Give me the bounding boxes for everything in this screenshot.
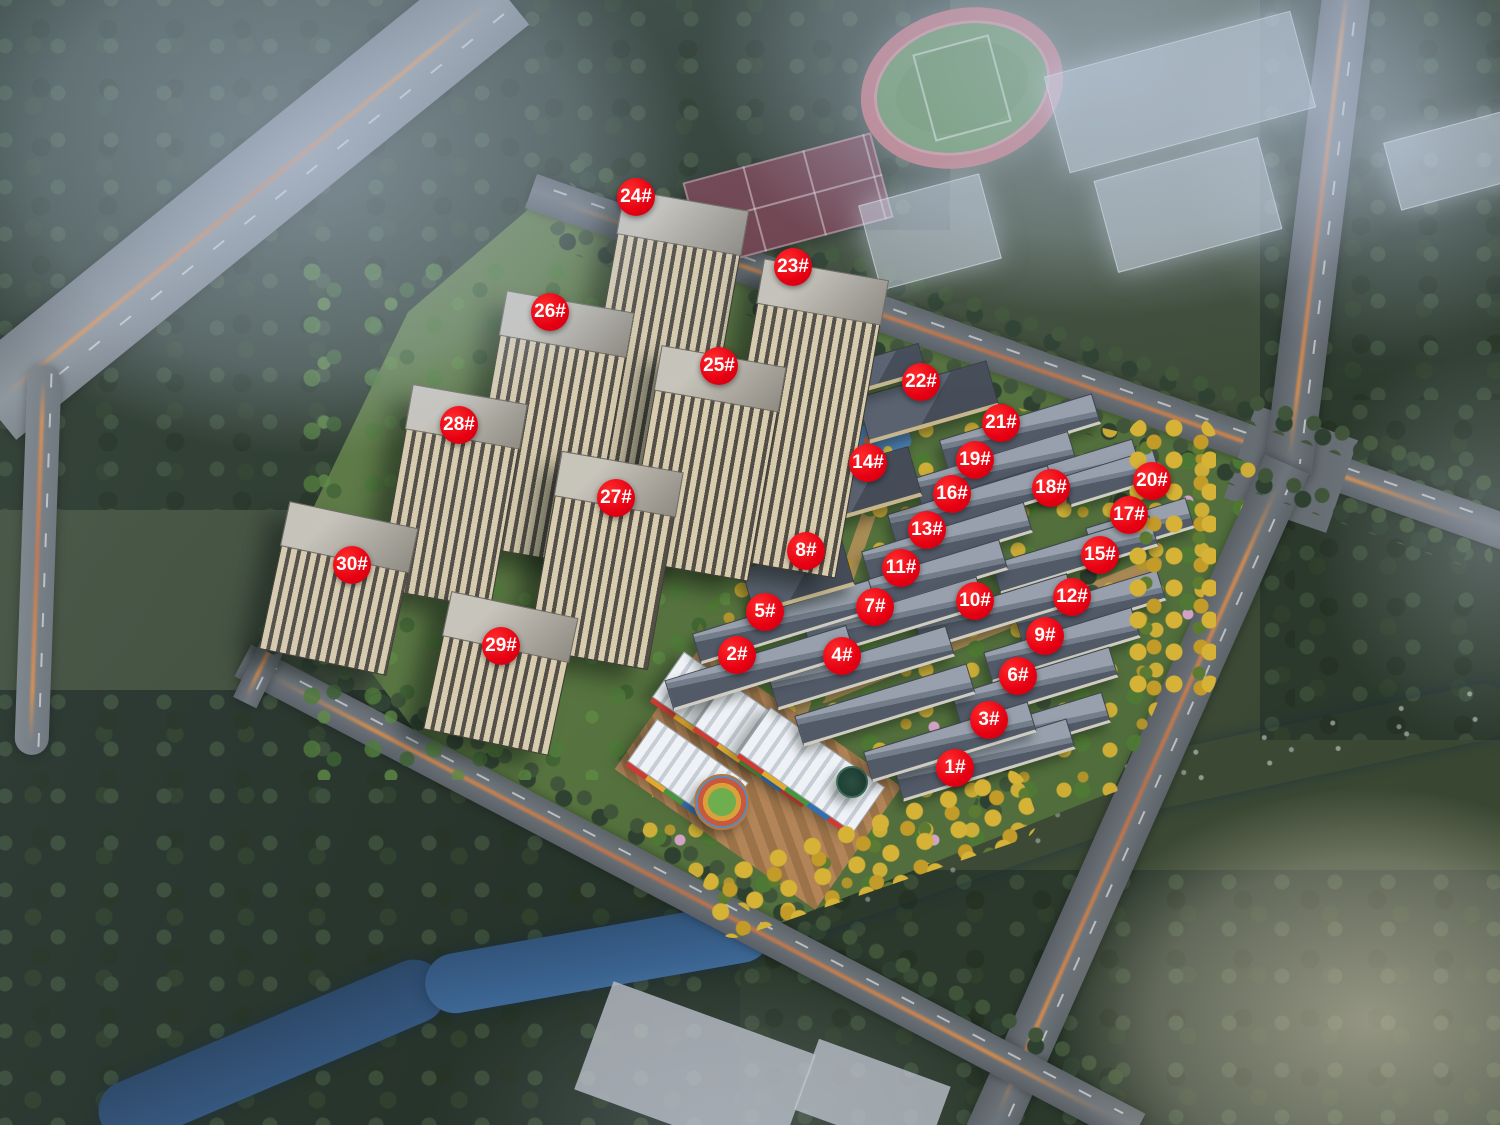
building-marker-25[interactable]: 25#: [700, 347, 738, 385]
building-marker-26[interactable]: 26#: [531, 293, 569, 331]
building-marker-1[interactable]: 1#: [936, 749, 974, 787]
building-marker-14[interactable]: 14#: [849, 444, 887, 482]
building-marker-16[interactable]: 16#: [933, 475, 971, 513]
building-marker-3[interactable]: 3#: [970, 701, 1008, 739]
building-marker-2[interactable]: 2#: [718, 636, 756, 674]
building-marker-17[interactable]: 17#: [1110, 496, 1148, 534]
building-marker-13[interactable]: 13#: [908, 511, 946, 549]
building-marker-20[interactable]: 20#: [1133, 462, 1171, 500]
building-marker-27[interactable]: 27#: [597, 479, 635, 517]
building-marker-9[interactable]: 9#: [1026, 617, 1064, 655]
building-marker-7[interactable]: 7#: [856, 588, 894, 626]
building-marker-4[interactable]: 4#: [823, 637, 861, 675]
building-marker-24[interactable]: 24#: [617, 178, 655, 216]
building-marker-12[interactable]: 12#: [1053, 578, 1091, 616]
markers-layer: 1#2#3#4#5#6#7#8#9#10#11#12#13#14#15#16#1…: [0, 0, 1500, 1125]
building-marker-29[interactable]: 29#: [482, 627, 520, 665]
building-marker-23[interactable]: 23#: [774, 248, 812, 286]
building-marker-28[interactable]: 28#: [440, 406, 478, 444]
building-marker-30[interactable]: 30#: [333, 546, 371, 584]
building-marker-6[interactable]: 6#: [999, 657, 1037, 695]
building-marker-15[interactable]: 15#: [1081, 536, 1119, 574]
building-marker-11[interactable]: 11#: [882, 549, 920, 587]
building-marker-18[interactable]: 18#: [1032, 469, 1070, 507]
building-marker-22[interactable]: 22#: [902, 363, 940, 401]
building-marker-10[interactable]: 10#: [956, 582, 994, 620]
building-marker-5[interactable]: 5#: [746, 593, 784, 631]
masterplan-aerial-view: 1#2#3#4#5#6#7#8#9#10#11#12#13#14#15#16#1…: [0, 0, 1500, 1125]
building-marker-21[interactable]: 21#: [982, 404, 1020, 442]
building-marker-8[interactable]: 8#: [787, 532, 825, 570]
building-marker-19[interactable]: 19#: [956, 441, 994, 479]
